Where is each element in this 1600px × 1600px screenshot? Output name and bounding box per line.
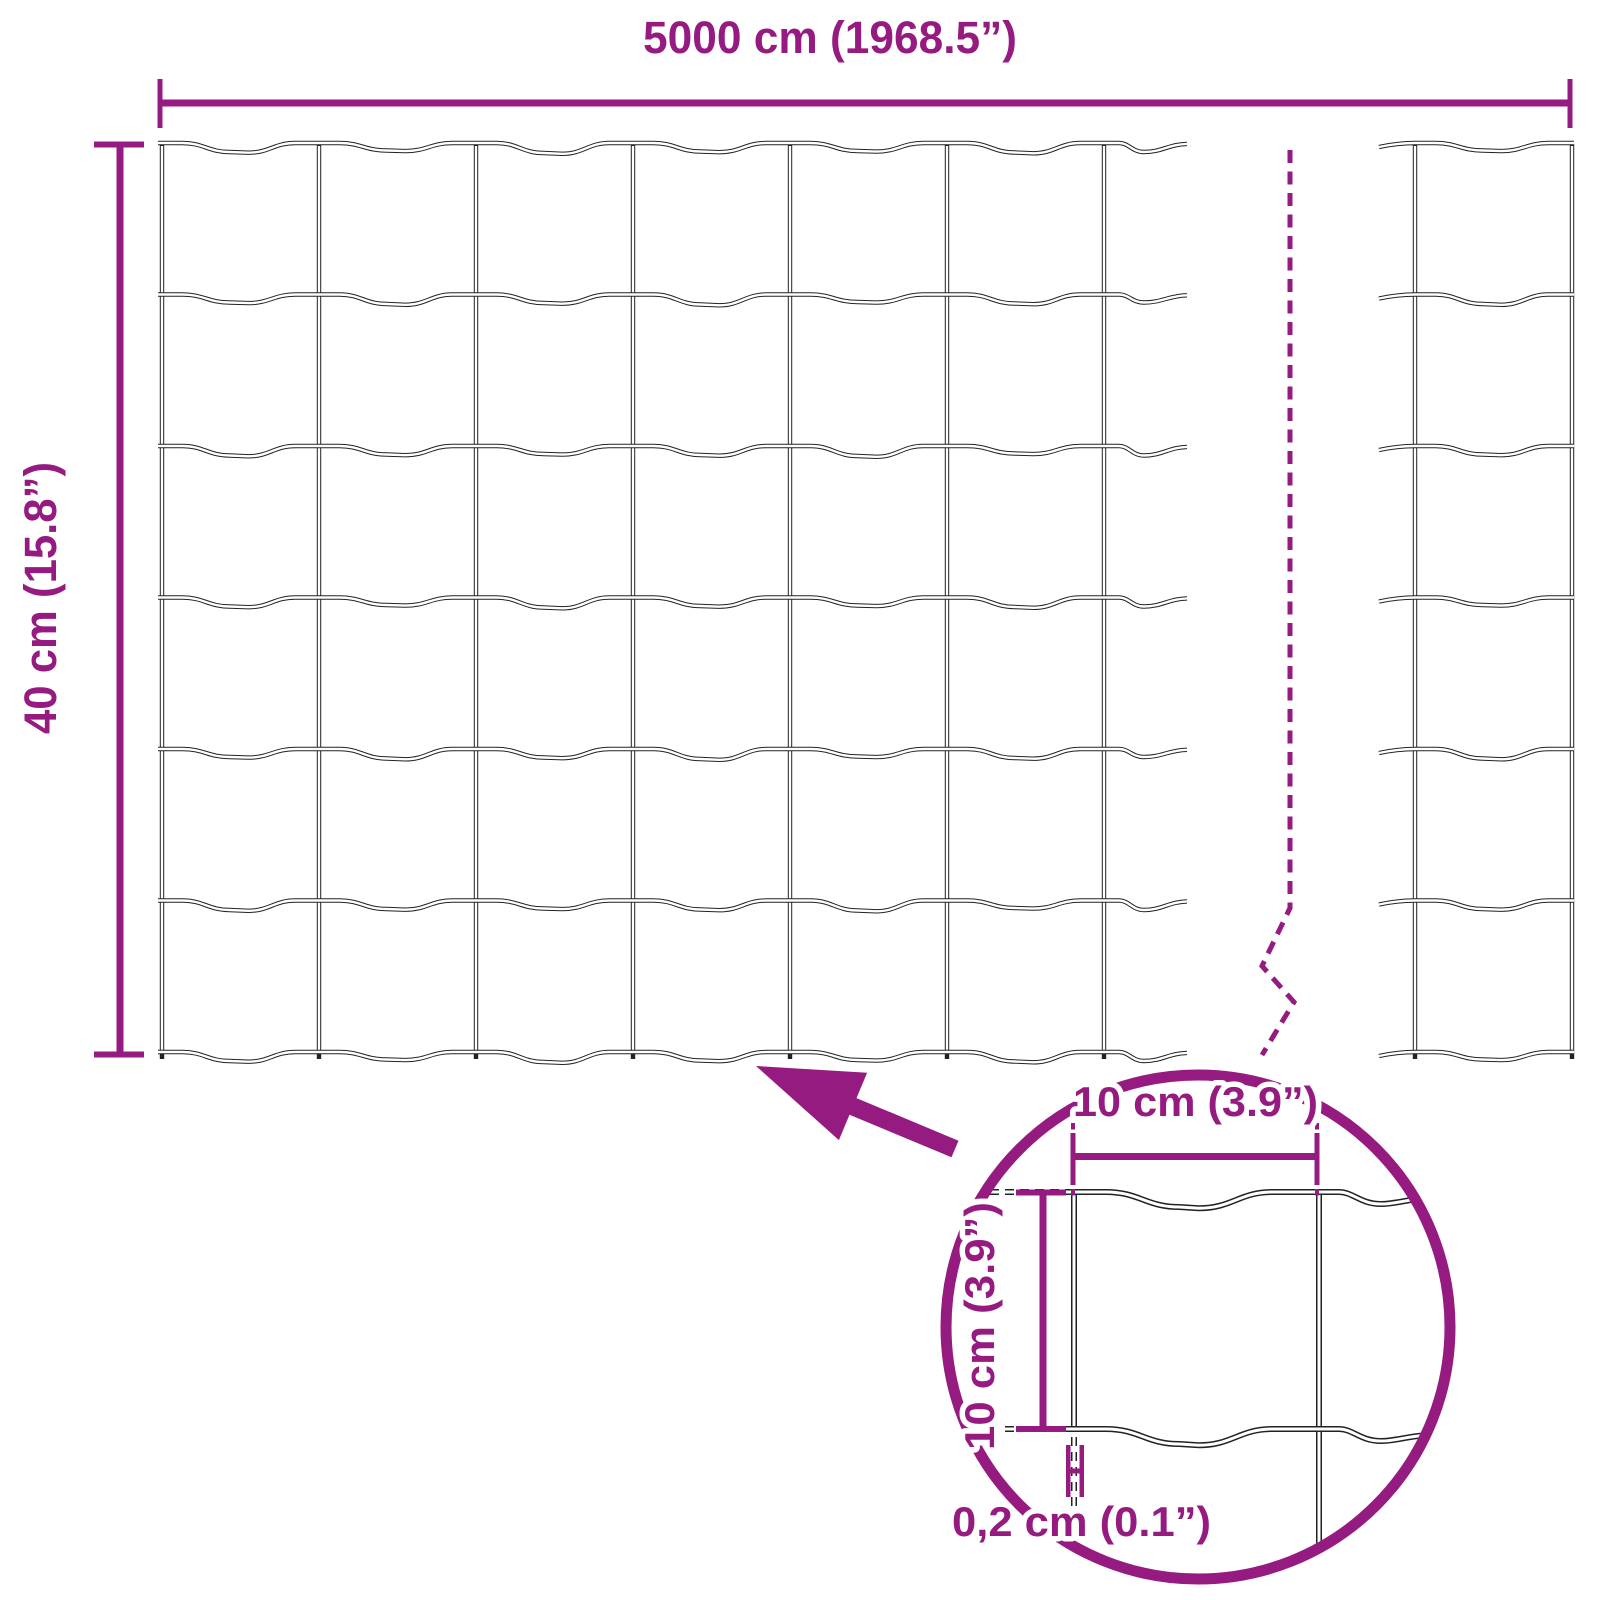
svg-text:40 cm (15.8”): 40 cm (15.8”) [15,462,66,734]
svg-text:10 cm (3.9”): 10 cm (3.9”) [1073,1078,1318,1125]
svg-text:5000 cm (1968.5”): 5000 cm (1968.5”) [643,12,1017,63]
svg-text:10 cm (3.9”): 10 cm (3.9”) [956,1202,1003,1450]
svg-text:0,2 cm (0.1”): 0,2 cm (0.1”) [952,1498,1211,1545]
